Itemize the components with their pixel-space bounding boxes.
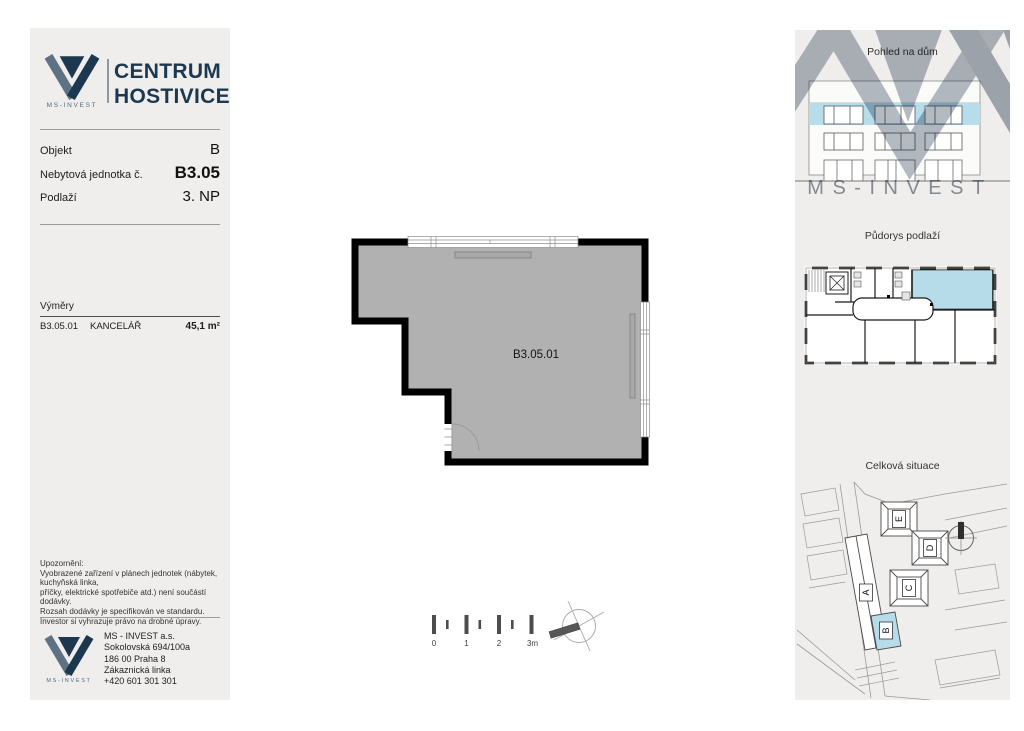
disclaimer-line: Rozsah dodávky je specifikován ve standa… xyxy=(40,607,228,617)
building-label-b: B xyxy=(881,627,891,633)
areas-heading: Výměry xyxy=(40,301,220,317)
unit-info: Objekt B Nebytová jednotka č. B3.05 Podl… xyxy=(40,141,220,210)
room-code: B3.05.01 xyxy=(40,321,90,332)
disclaimer-line: příčky, elektrické spotřebiče atd.) není… xyxy=(40,588,228,607)
radiator xyxy=(455,252,531,258)
scale-tick-label: 0 xyxy=(432,639,437,648)
info-label: Objekt xyxy=(40,145,72,157)
divider xyxy=(40,129,220,130)
radiator xyxy=(630,314,635,398)
section-title-sitemap: Celková situace xyxy=(795,460,1010,472)
building-label-d: D xyxy=(925,544,935,551)
window-right xyxy=(641,302,650,437)
section-title-floorplan: Půdorys podlaží xyxy=(795,230,1010,242)
watermark-text: MS-INVEST xyxy=(807,177,992,199)
building-label-c: C xyxy=(904,584,914,591)
phone-number: +420 601 301 301 xyxy=(104,676,190,687)
site-map: A B C D E xyxy=(795,480,1010,700)
area-row: B3.05.01 KANCELÁŘ 45,1 m² xyxy=(40,321,220,332)
scale-tick-label: 2 xyxy=(497,639,502,648)
scale-bar: 0 1 2 3m xyxy=(427,613,547,651)
info-value: B xyxy=(210,141,220,158)
disclaimer-line: Vyobrazené zařízení v plánech jednotek (… xyxy=(40,569,228,588)
right-overview-panel: Pohled na dům xyxy=(795,30,1010,700)
window-top xyxy=(408,237,578,248)
ms-invest-logo-icon xyxy=(44,635,94,676)
logo-caption: MS-INVEST xyxy=(38,678,100,684)
info-label: Podlaží xyxy=(40,192,77,204)
page: MS-INVEST CENTRUM HOSTIVICE Objekt B Neb… xyxy=(0,0,1024,731)
info-row-objekt: Objekt B xyxy=(40,141,220,158)
scale-tick-label: 3m xyxy=(527,639,538,648)
divider xyxy=(107,59,109,103)
info-label: Nebytová jednotka č. xyxy=(40,169,143,181)
corridor xyxy=(853,298,933,320)
building-label-a: A xyxy=(861,589,871,595)
elevator xyxy=(826,272,848,294)
room-name: KANCELÁŘ xyxy=(90,321,186,332)
info-value: B3.05 xyxy=(175,163,220,183)
company-city: 186 00 Praha 8 xyxy=(104,654,190,665)
floor-plan: B3.05.01 xyxy=(335,228,665,473)
building-label-e: E xyxy=(894,516,904,522)
map-north-compass-icon xyxy=(945,521,977,555)
info-row-podlazi: Podlaží 3. NP xyxy=(40,188,220,205)
company-name: MS - INVEST a.s. xyxy=(104,631,190,642)
project-title: CENTRUM HOSTIVICE xyxy=(114,59,230,109)
ms-invest-logo-icon xyxy=(44,54,100,100)
phone-label: Zákaznická linka xyxy=(104,665,190,676)
room-area: 45,1 m² xyxy=(186,321,220,332)
unit-outline xyxy=(355,242,645,462)
disclaimer-heading: Upozornění: xyxy=(40,559,228,569)
disclaimer-line: Investor si vyhrazuje právo na drobné úp… xyxy=(40,617,228,627)
info-row-jednotka: Nebytová jednotka č. B3.05 xyxy=(40,163,220,183)
ms-invest-watermark: MS-INVEST xyxy=(795,30,1010,222)
floor-overview xyxy=(795,262,1010,370)
room-label: B3.05.01 xyxy=(513,349,559,361)
company-contact: MS - INVEST a.s. Sokolovská 694/100a 186… xyxy=(104,631,190,687)
company-address: Sokolovská 694/100a xyxy=(104,642,190,653)
logo-caption: MS-INVEST xyxy=(38,102,106,109)
left-info-panel: MS-INVEST CENTRUM HOSTIVICE Objekt B Neb… xyxy=(30,28,230,700)
scale-tick-label: 1 xyxy=(464,639,469,648)
north-compass-icon xyxy=(546,597,610,657)
divider xyxy=(40,617,220,618)
divider xyxy=(40,224,220,225)
project-title-line2: HOSTIVICE xyxy=(114,84,230,109)
info-value: 3. NP xyxy=(182,188,220,205)
project-title-line1: CENTRUM xyxy=(114,59,230,84)
